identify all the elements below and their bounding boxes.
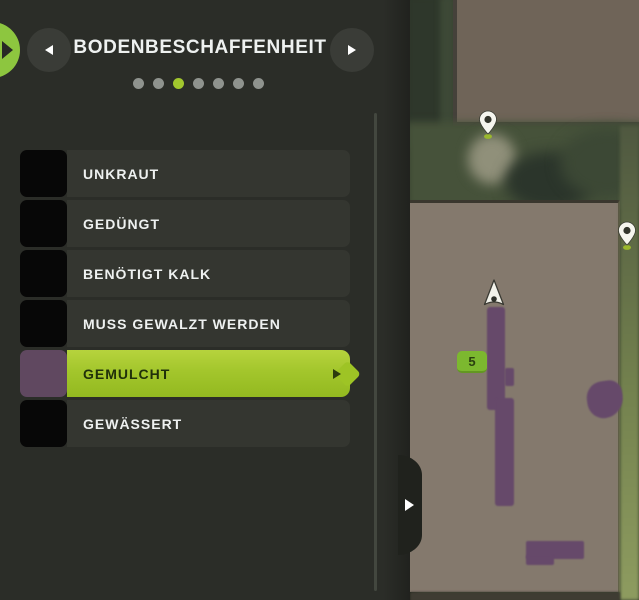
game-map-overlay: BODENBESCHAFFENHEIT UNKRAUT GEDÜNGT BENÖ… [0, 0, 639, 600]
scrollbar[interactable] [374, 113, 377, 591]
player-arrow-icon [483, 279, 505, 307]
mulched-area [487, 307, 505, 410]
legend-swatch [20, 200, 67, 247]
legend-label: BENÖTIGT KALK [83, 266, 211, 282]
map-pin-icon[interactable] [617, 221, 637, 251]
legend-item-benoetigt-kalk[interactable]: BENÖTIGT KALK [20, 250, 350, 297]
legend-item-gewaessert[interactable]: GEWÄSSERT [20, 400, 350, 447]
page-dot[interactable] [213, 78, 224, 89]
legend-swatch [20, 400, 67, 447]
prev-category-button[interactable] [27, 28, 71, 72]
caret-right-icon [333, 369, 341, 379]
legend-swatch [20, 300, 67, 347]
next-category-button[interactable] [330, 28, 374, 72]
terrain-grass-strip [620, 126, 639, 600]
soil-condition-panel: BODENBESCHAFFENHEIT UNKRAUT GEDÜNGT BENÖ… [0, 0, 410, 600]
page-title: BODENBESCHAFFENHEIT [70, 37, 330, 59]
page-dot[interactable] [253, 78, 264, 89]
minimap[interactable]: 5 [410, 0, 639, 600]
terrain-edge [410, 592, 620, 600]
legend-item-unkraut[interactable]: UNKRAUT [20, 150, 350, 197]
chevron-right-icon [2, 41, 13, 59]
map-pin-icon[interactable] [478, 110, 498, 140]
arrow-left-icon [45, 45, 53, 55]
page-dot[interactable] [173, 78, 184, 89]
arrow-right-icon [348, 45, 356, 55]
field-number-badge[interactable]: 5 [457, 351, 487, 373]
soil-legend-list: UNKRAUT GEDÜNGT BENÖTIGT KALK MUSS GEWAL… [20, 150, 350, 447]
chevron-right-icon [405, 499, 414, 511]
legend-label: GEDÜNGT [83, 216, 160, 232]
legend-swatch [20, 350, 67, 397]
legend-label: GEMULCHT [83, 366, 170, 382]
page-dot[interactable] [153, 78, 164, 89]
menu-notch-button[interactable] [0, 22, 20, 78]
panel-collapse-handle[interactable] [398, 455, 422, 555]
legend-swatch [20, 250, 67, 297]
legend-label: GEWÄSSERT [83, 416, 182, 432]
legend-swatch [20, 150, 67, 197]
page-dot[interactable] [133, 78, 144, 89]
mulched-area [505, 368, 514, 386]
page-dots [133, 78, 264, 89]
page-dot[interactable] [233, 78, 244, 89]
legend-item-muss-gewalzt-werden[interactable]: MUSS GEWALZT WERDEN [20, 300, 350, 347]
legend-item-geduengt[interactable]: GEDÜNGT [20, 200, 350, 247]
legend-item-gemulcht[interactable]: GEMULCHT [20, 350, 350, 397]
mulched-area [495, 398, 514, 506]
page-dot[interactable] [193, 78, 204, 89]
mulched-area [526, 555, 554, 565]
map-field-top [453, 0, 639, 126]
legend-label: MUSS GEWALZT WERDEN [83, 316, 281, 332]
legend-label: UNKRAUT [83, 166, 159, 182]
